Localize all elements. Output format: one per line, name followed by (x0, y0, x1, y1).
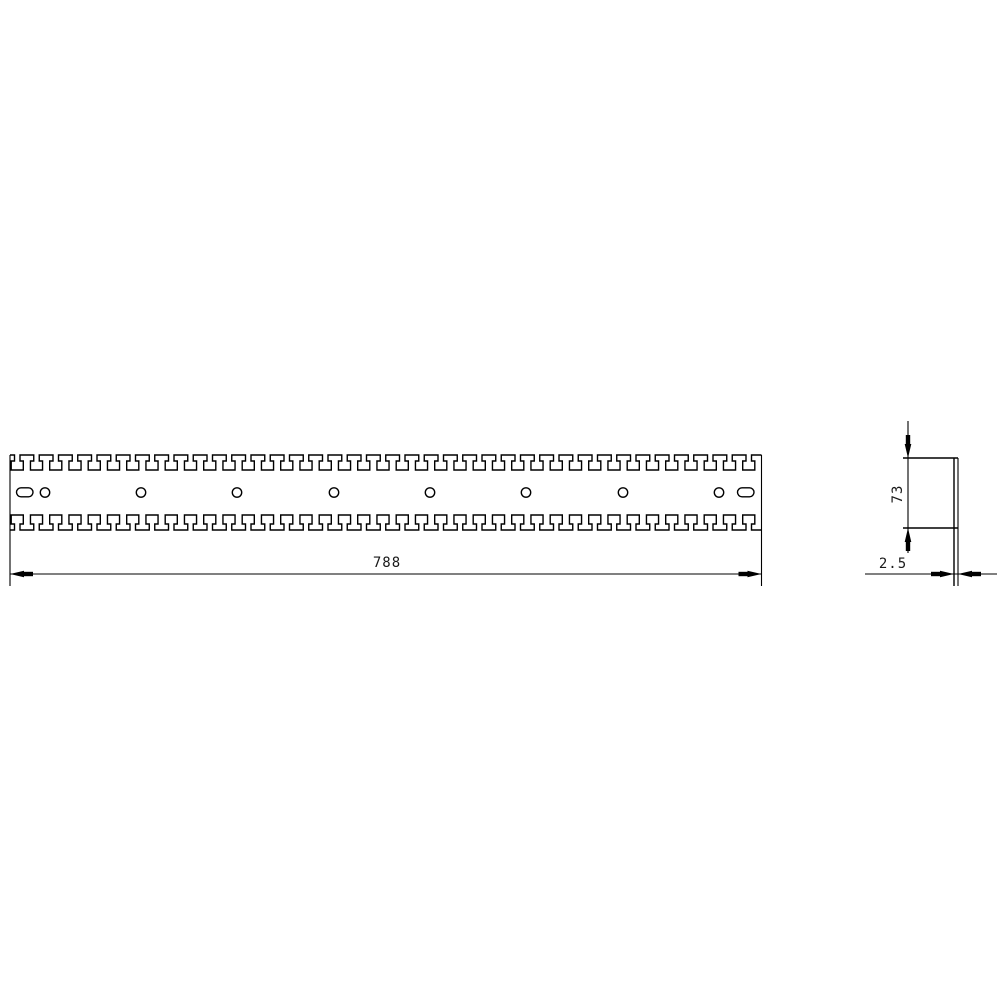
height-dimension-text: 73 (890, 485, 906, 504)
drawing-canvas: 788 73 (0, 0, 1000, 1000)
length-arrow-right-stub-icon (739, 572, 748, 576)
length-arrow-left-stub-icon (24, 572, 33, 576)
thickness-arrow-right-stub-icon (972, 572, 981, 576)
length-dimension-text: 788 (373, 555, 401, 571)
sheet-background (0, 0, 1000, 1000)
height-arrow-top-stub-icon (906, 435, 910, 444)
thickness-dimension-text: 2.5 (879, 556, 907, 572)
height-arrow-bottom-stub-icon (906, 542, 910, 551)
technical-drawing: 788 73 (0, 0, 1000, 1000)
thickness-arrow-left-stub-icon (931, 572, 940, 576)
